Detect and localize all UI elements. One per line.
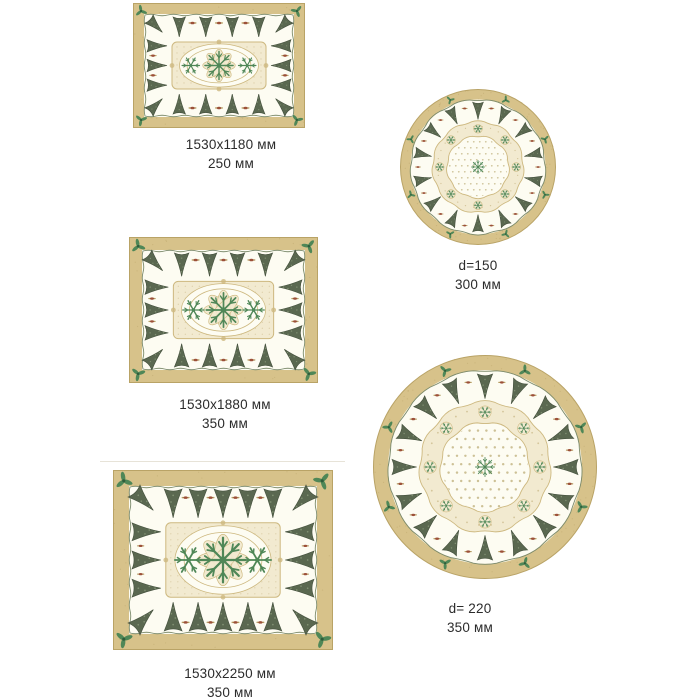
center-medallion: [171, 279, 276, 341]
size-caption: d=150 300 мм: [378, 256, 578, 294]
snowflake-motif: [205, 51, 233, 79]
width-label: 350 мм: [125, 414, 325, 433]
tablecloth-rect-1530x1880: [129, 237, 318, 383]
size-caption: d= 220 350 мм: [370, 599, 570, 637]
photo-edge-line: [100, 461, 345, 462]
dimensions-label: d=150: [378, 256, 578, 275]
tablecloth-artwork: [133, 3, 305, 128]
dimensions-label: 1530x2250 мм: [130, 664, 330, 683]
tablecloth-artwork: [400, 89, 556, 245]
size-caption: 1530x2250 мм 350 мм: [130, 664, 330, 700]
snowflake-motif: [206, 293, 240, 327]
center-medallion: [170, 40, 269, 92]
size-caption: 1530x1180 мм 250 мм: [131, 135, 331, 173]
snowflake-motif: [201, 538, 246, 583]
size-caption: 1530x1880 мм 350 мм: [125, 395, 325, 433]
tablecloth-artwork: [129, 237, 318, 383]
snowflake-motif: [471, 160, 484, 173]
tablecloth-artwork: [373, 355, 597, 579]
product-collage: 1530x1180 мм 250 мм d=150 300 мм 1530x18…: [0, 0, 700, 700]
tablecloth-round-d220: [373, 355, 597, 579]
tablecloth-artwork: [113, 470, 333, 650]
dimensions-label: 1530x1180 мм: [131, 135, 331, 154]
width-label: 300 мм: [378, 275, 578, 294]
width-label: 350 мм: [130, 683, 330, 700]
width-label: 350 мм: [370, 618, 570, 637]
dimensions-label: d= 220: [370, 599, 570, 618]
dimensions-label: 1530x1880 мм: [125, 395, 325, 414]
tablecloth-rect-1530x1180: [133, 3, 305, 128]
tablecloth-rect-1530x2250: [113, 470, 333, 650]
tablecloth-round-d150: [400, 89, 556, 245]
width-label: 250 мм: [131, 154, 331, 173]
center-medallion: [163, 520, 282, 599]
snowflake-motif: [475, 457, 494, 476]
